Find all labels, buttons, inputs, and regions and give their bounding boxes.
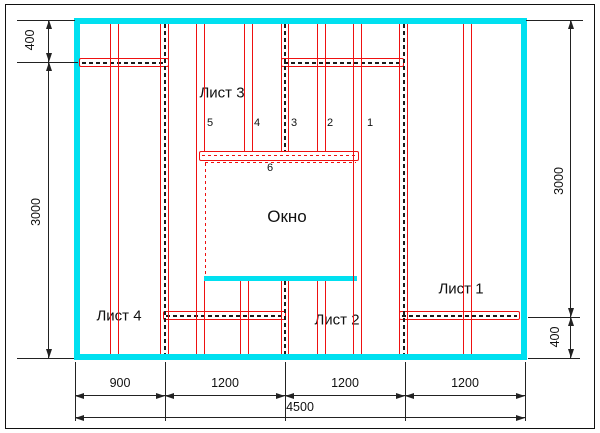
dimension-arrow: [156, 393, 165, 399]
stud-line: [281, 281, 282, 354]
band-centerline: [402, 315, 517, 317]
dimension-arrow: [285, 393, 294, 399]
dimension-line: [570, 20, 571, 317]
stud-line: [204, 24, 205, 151]
nailer-band-top-left: [79, 58, 169, 67]
stud-line: [244, 24, 245, 151]
dimension-line: [75, 417, 525, 418]
dim-left-400: 400: [23, 30, 37, 51]
stud-line: [252, 24, 253, 151]
stud-line: [317, 24, 318, 151]
stud-centerline: [284, 24, 286, 151]
window-header: [199, 151, 359, 161]
dimension-arrow: [516, 393, 525, 399]
window-top-edge: [205, 162, 356, 163]
sheet-4-label: Лист 4: [96, 308, 141, 325]
dimension-arrow: [568, 349, 574, 358]
dim-right-3000: 3000: [552, 167, 566, 195]
extension-line: [75, 362, 76, 421]
dimension-line: [285, 395, 405, 396]
band-centerline: [284, 62, 401, 64]
stud-line: [168, 24, 169, 354]
extension-line: [525, 362, 526, 421]
dimension-arrow: [75, 393, 84, 399]
stud-line: [463, 24, 464, 354]
extension-line: [528, 358, 580, 359]
stud-line: [288, 281, 289, 354]
stud-line: [240, 281, 241, 354]
dimension-arrow: [568, 317, 574, 326]
stud-centerline: [164, 24, 166, 354]
extension-line: [526, 20, 583, 21]
stud-line: [471, 24, 472, 354]
extension-line: [17, 358, 74, 359]
stud-line: [110, 24, 111, 354]
stud-line: [160, 24, 161, 354]
stud-line: [361, 24, 362, 354]
window-label: Окно: [267, 207, 307, 227]
dimension-arrow: [46, 20, 52, 29]
stud-line: [325, 24, 326, 151]
band-centerline: [166, 315, 283, 317]
dimension-line: [48, 62, 49, 358]
framing-diagram: Лист 3 Лист 1 Лист 2 Лист 4 Окно 5 4 3 2…: [0, 0, 600, 433]
stud-line: [317, 281, 318, 354]
nailer-band-bottom-right: [399, 311, 520, 320]
stud-line: [288, 24, 289, 151]
band-centerline: [82, 62, 166, 64]
stud-line: [204, 281, 205, 354]
stud-number-2: 2: [327, 117, 333, 129]
dim-bottom-900: 900: [110, 376, 131, 390]
nailer-band-top-right: [281, 58, 404, 67]
dim-bottom-1200-c: 1200: [451, 376, 479, 390]
sheet-1-label: Лист 1: [438, 281, 483, 298]
stud-centerline: [284, 281, 286, 354]
header-number-6: 6: [267, 162, 273, 174]
stud-line: [407, 24, 408, 354]
extension-line: [405, 362, 406, 421]
stud-number-4: 4: [254, 117, 260, 129]
dim-right-400: 400: [548, 327, 562, 348]
dimension-arrow: [568, 20, 574, 29]
window-left-edge: [205, 163, 206, 276]
stud-number-3: 3: [291, 117, 297, 129]
dimension-line: [405, 395, 525, 396]
header-centerline: [202, 155, 356, 156]
dimension-arrow: [165, 393, 174, 399]
stud-number-5: 5: [207, 117, 213, 129]
extension-line: [285, 362, 286, 421]
stud-number-1: 1: [367, 117, 373, 129]
dimension-arrow: [396, 393, 405, 399]
dimension-arrow: [46, 53, 52, 62]
dimension-arrow: [46, 349, 52, 358]
dim-left-3000: 3000: [29, 198, 43, 226]
dim-bottom-1200-a: 1200: [211, 376, 239, 390]
dimension-arrow: [276, 393, 285, 399]
stud-line: [325, 281, 326, 354]
stud-line: [196, 24, 197, 354]
stud-centerline: [403, 24, 405, 354]
dim-bottom-1200-b: 1200: [331, 376, 359, 390]
stud-line: [353, 24, 354, 354]
dim-bottom-4500: 4500: [286, 400, 314, 414]
dimension-arrow: [46, 62, 52, 71]
dimension-arrow: [516, 415, 525, 421]
extension-line: [165, 362, 166, 421]
dimension-line: [75, 395, 165, 396]
stud-line: [248, 281, 249, 354]
stud-line: [118, 24, 119, 354]
sheet-3-label: Лист 3: [199, 85, 244, 102]
dimension-arrow: [405, 393, 414, 399]
stud-line: [399, 24, 400, 354]
nailer-band-bottom-left: [163, 311, 286, 320]
dimension-arrow: [568, 308, 574, 317]
dimension-arrow: [75, 415, 84, 421]
dimension-line: [165, 395, 285, 396]
stud-line: [281, 24, 282, 151]
